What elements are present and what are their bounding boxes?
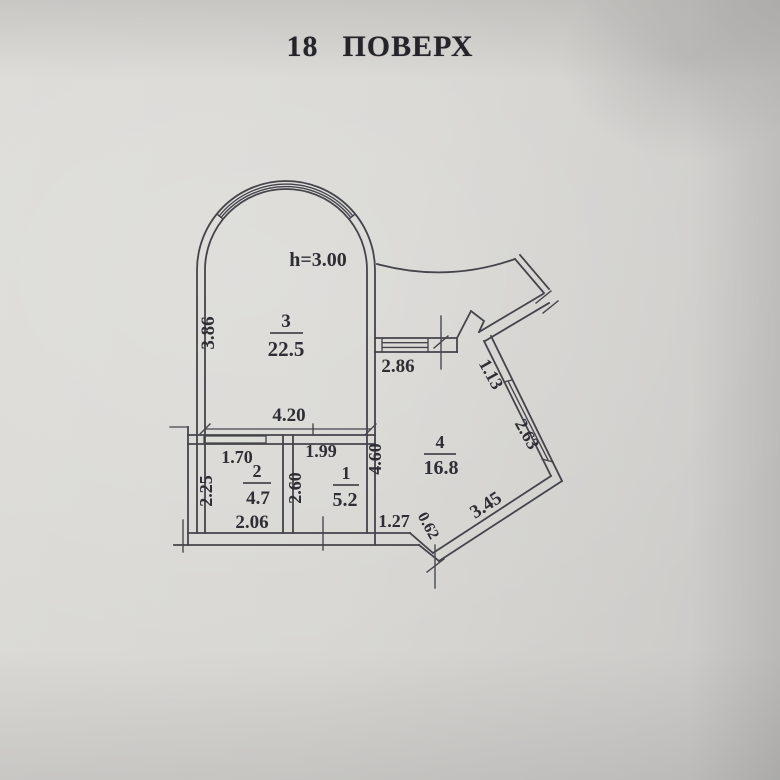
dim-room1-top: 1.99 [305,441,337,461]
dim-room4-side: 4.60 [365,443,385,475]
dim-room3-bottom: 4.20 [272,405,305,426]
floor-plan-photo: 18 ПОВЕРХ [0,0,780,780]
tick-balcony-corner-2 [543,301,558,313]
wall-balcony-right [515,255,549,293]
niche-room2 [204,436,266,443]
room1-area: 5.2 [333,489,358,511]
room3-number: 3 [281,311,291,332]
wall-bottom [174,533,419,545]
wall-diagonal-lower [433,476,562,561]
room4-area: 16.8 [424,457,459,479]
room2-number: 2 [253,461,262,481]
dimension-marks [170,291,558,588]
wall-diagonal-window [484,336,562,481]
floor-plan-drawing: h=3.00 3 22.5 3.86 4.20 2.86 1.13 2.63 3… [0,0,780,780]
window-hatch-room4 [382,338,428,352]
dim-room2-left: 2.25 [196,475,216,507]
balcony-curve [377,259,515,272]
dim-diag-lower: 3.45 [466,488,505,524]
room2-area: 4.7 [246,488,270,509]
dim-room3-left: 3.86 [198,316,219,349]
dim-hall-width: 2.86 [381,356,414,377]
dim-room4-bottom: 1.27 [378,511,410,531]
dim-room2-top: 1.70 [221,447,253,467]
dim-room1-left: 2.60 [285,472,305,504]
room1-number: 1 [342,463,351,483]
tick-bottom-corner [427,545,444,588]
dim-diag-window: 2.63 [511,415,544,452]
room3-area: 22.5 [268,337,305,361]
dim-room2-bottom: 2.06 [235,512,268,533]
dim-step: 0.62 [414,510,442,543]
labels: h=3.00 3 22.5 3.86 4.20 2.86 1.13 2.63 3… [196,249,544,542]
dim-ext-hall [434,316,448,369]
wall-room4-top [375,338,457,352]
ceiling-height-label: h=3.00 [289,249,347,271]
room4-number: 4 [436,432,445,452]
